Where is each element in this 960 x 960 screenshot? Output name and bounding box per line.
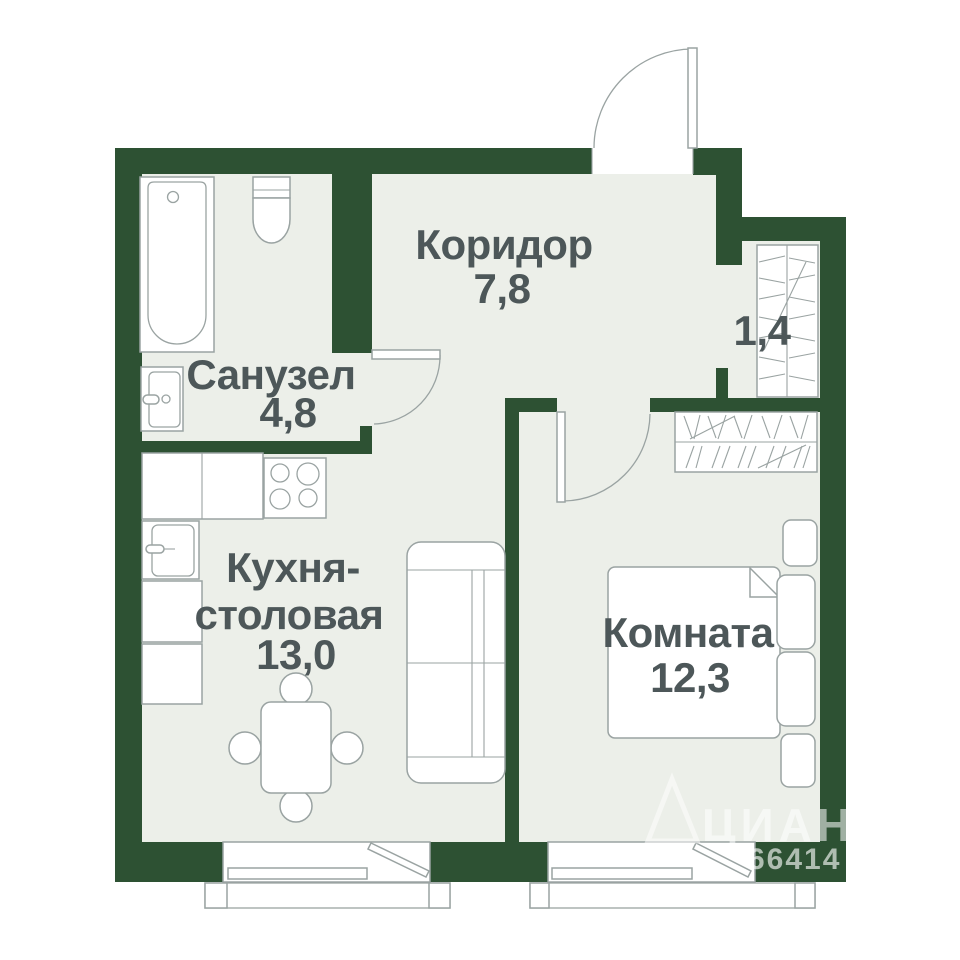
kitchen-sink xyxy=(142,521,199,579)
floor-plan-page: Коридор 7,8 Санузел 4,8 Кухня- столовая … xyxy=(0,0,960,960)
nightstand xyxy=(781,734,815,787)
bedroom-label: Комната xyxy=(603,609,775,656)
closet-area: 1,4 xyxy=(734,307,792,354)
floor-plan: Коридор 7,8 Санузел 4,8 Кухня- столовая … xyxy=(0,0,960,960)
nightstand xyxy=(783,520,817,566)
bedroom-door-leaf xyxy=(557,412,565,502)
sofa xyxy=(407,542,505,783)
kitchen-window xyxy=(205,842,450,908)
corridor-area: 7,8 xyxy=(474,265,531,312)
bathroom-area: 4,8 xyxy=(260,389,317,436)
bedroom-area: 12,3 xyxy=(650,654,730,701)
bathroom-door-leaf xyxy=(372,350,440,359)
chair xyxy=(229,732,261,764)
chair xyxy=(331,732,363,764)
stove xyxy=(264,458,326,518)
kitchen-label-line1: Кухня- xyxy=(226,544,360,591)
pillow xyxy=(777,652,815,726)
bathroom-faucet xyxy=(143,395,159,404)
corridor-label: Коридор xyxy=(415,221,592,268)
toilet xyxy=(253,177,290,243)
bedroom-wardrobe xyxy=(675,412,817,472)
bathtub xyxy=(140,177,214,352)
watermark-number: 66414 xyxy=(748,843,841,876)
bathroom-sink xyxy=(141,367,183,431)
entrance-door-leaf xyxy=(688,48,697,148)
dining-table xyxy=(261,702,331,793)
chair xyxy=(280,790,312,822)
kitchen-faucet xyxy=(146,545,164,553)
kitchen-area: 13,0 xyxy=(256,631,336,678)
pillow xyxy=(777,575,815,649)
